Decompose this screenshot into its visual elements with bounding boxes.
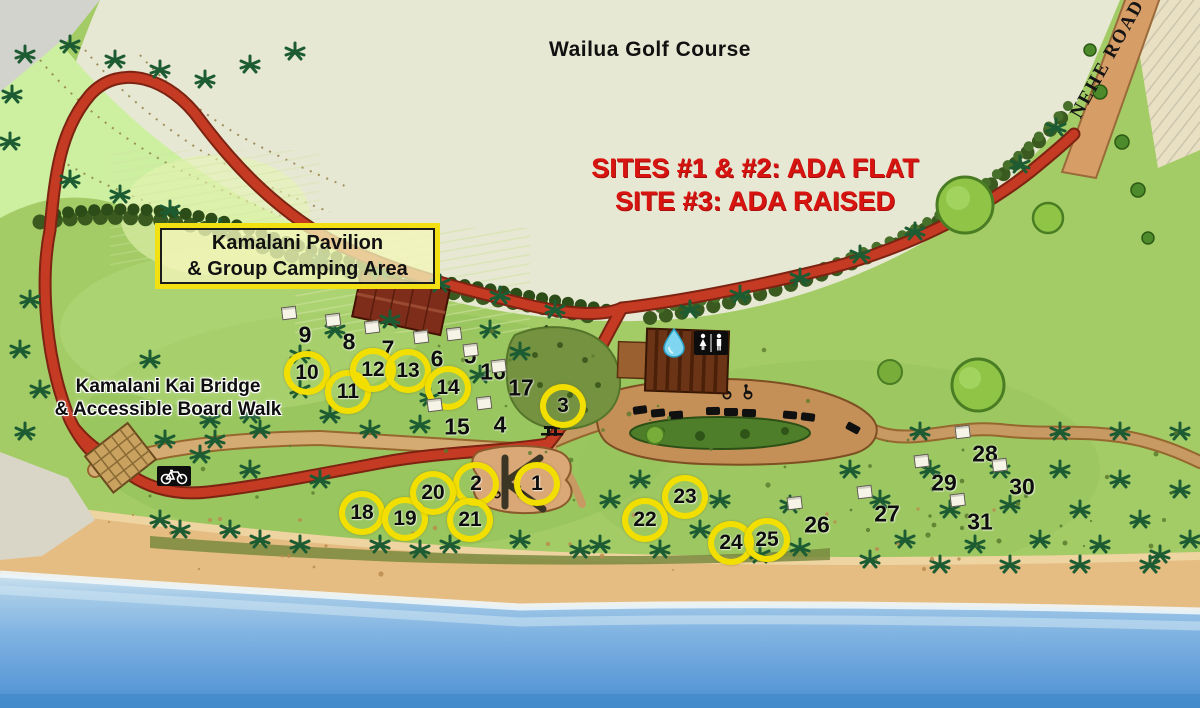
site-number: 24 [719, 531, 742, 555]
site-number: 12 [361, 358, 384, 382]
bridge-label-line2: & Accessible Board Walk [30, 398, 306, 421]
park-map: Wailua Golf Course SITES #1 & #2: ADA FL… [0, 0, 1200, 708]
site-number: 14 [436, 376, 459, 400]
tent-icon [913, 454, 929, 469]
pavilion-box-line1: Kamalani Pavilion [160, 230, 435, 256]
site-number: 2 [470, 472, 482, 496]
site-number: 30 [1009, 474, 1035, 501]
site-marker-30[interactable]: 30 [1009, 474, 1035, 501]
site-marker-10[interactable]: 10 [284, 351, 330, 395]
site-number: 21 [458, 508, 481, 532]
site-number: 23 [673, 485, 696, 509]
tent-icon [954, 425, 970, 440]
tent-icon [476, 396, 492, 411]
bridge-label: Kamalani Kai Bridge & Accessible Board W… [30, 375, 306, 421]
site-marker-1[interactable]: 1 [514, 462, 560, 506]
site-marker-18[interactable]: 18 [339, 491, 385, 535]
tent-icon [490, 359, 506, 374]
golf-course-label: Wailua Golf Course [480, 38, 820, 62]
tent-icon [364, 320, 380, 335]
pavilion-box-line2: & Group Camping Area [160, 256, 435, 282]
site-number: 31 [967, 509, 993, 536]
ada-note-line2: SITE #3: ADA RAISED [548, 185, 962, 218]
site-number: 13 [396, 359, 419, 383]
water-icon [661, 328, 687, 358]
site-number: 3 [557, 394, 569, 418]
tent-icon [325, 313, 341, 328]
map-artwork [0, 0, 1200, 708]
site-marker-26[interactable]: 26 [804, 512, 830, 539]
site-number: 22 [633, 508, 656, 532]
site-number: 4 [494, 412, 507, 439]
site-number: 26 [804, 512, 830, 539]
restroom-icon [694, 331, 728, 355]
bridge-label-line1: Kamalani Kai Bridge [30, 375, 306, 398]
tent-icon [413, 330, 429, 345]
site-number: 8 [343, 329, 356, 356]
tent-icon [446, 327, 462, 342]
site-number: 20 [421, 481, 444, 505]
tent-icon [786, 496, 802, 511]
site-marker-9[interactable]: 9 [299, 322, 312, 349]
site-marker-17[interactable]: 17 [508, 375, 534, 402]
tent-icon [949, 493, 965, 508]
tent-icon [281, 306, 297, 321]
site-marker-15[interactable]: 15 [444, 414, 470, 441]
site-marker-4[interactable]: 4 [494, 412, 507, 439]
site-number: 10 [295, 361, 318, 385]
site-number: 9 [299, 322, 312, 349]
bicycle-icon [157, 466, 191, 486]
ada-note-line1: SITES #1 & #2: ADA FLAT [548, 152, 962, 185]
site-marker-25[interactable]: 25 [744, 518, 790, 562]
site-marker-21[interactable]: 21 [447, 498, 493, 542]
site-marker-8[interactable]: 8 [343, 329, 356, 356]
site-marker-22[interactable]: 22 [622, 498, 668, 542]
tent-icon [426, 398, 442, 413]
tent-icon [991, 458, 1007, 473]
ada-sites-note: SITES #1 & #2: ADA FLAT SITE #3: ADA RAI… [548, 152, 962, 218]
site-marker-23[interactable]: 23 [662, 475, 708, 519]
site-number: 15 [444, 414, 470, 441]
site-marker-31[interactable]: 31 [967, 509, 993, 536]
site-number: 25 [755, 528, 778, 552]
site-number: 27 [874, 501, 900, 528]
site-number: 17 [508, 375, 534, 402]
site-marker-27[interactable]: 27 [874, 501, 900, 528]
pavilion-callout-box: Kamalani Pavilion & Group Camping Area [155, 223, 440, 289]
tent-icon [462, 343, 478, 358]
tent-icon [856, 485, 872, 500]
site-number: 18 [350, 501, 373, 525]
site-number: 1 [531, 472, 543, 496]
site-number: 19 [393, 507, 416, 531]
site-number: 29 [931, 470, 957, 497]
site-marker-3[interactable]: 3 [540, 384, 586, 428]
site-marker-29[interactable]: 29 [931, 470, 957, 497]
